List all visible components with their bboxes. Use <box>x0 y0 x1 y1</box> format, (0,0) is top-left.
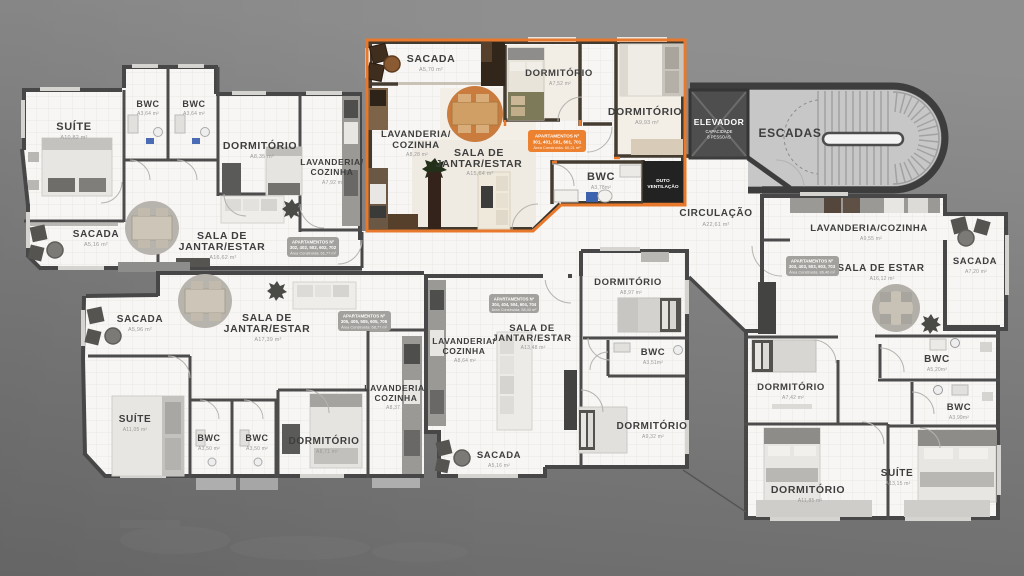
svg-text:APARTAMENTOS Nº: APARTAMENTOS Nº <box>791 259 834 264</box>
svg-text:BWC: BWC <box>182 99 205 109</box>
svg-text:JANTAR/ESTAR: JANTAR/ESTAR <box>224 323 311 335</box>
svg-text:A17,39 m²: A17,39 m² <box>254 337 281 343</box>
svg-text:A13,48 m²: A13,48 m² <box>521 345 546 351</box>
svg-text:SACADA: SACADA <box>73 229 119 240</box>
svg-text:A8,37 m²: A8,37 m² <box>386 405 408 411</box>
svg-text:BWC: BWC <box>197 433 220 443</box>
svg-text:BWC: BWC <box>136 99 159 109</box>
svg-text:DORMITÓRIO: DORMITÓRIO <box>525 67 593 79</box>
svg-text:A16,62 m²: A16,62 m² <box>209 255 236 261</box>
svg-text:305, 405, 505, 605, 705: 305, 405, 505, 605, 705 <box>341 319 388 324</box>
svg-text:A22,61 m²: A22,61 m² <box>702 222 729 228</box>
svg-text:A10,82 m²: A10,82 m² <box>60 135 87 141</box>
svg-text:DORMITÓRIO: DORMITÓRIO <box>757 381 825 393</box>
svg-text:303, 403, 503, 603, 703: 303, 403, 503, 603, 703 <box>789 264 836 269</box>
svg-text:SUÍTE: SUÍTE <box>56 120 91 133</box>
svg-text:A15,64 m²: A15,64 m² <box>466 171 493 177</box>
svg-text:DORMITÓRIO: DORMITÓRIO <box>594 276 662 288</box>
svg-text:ELEVADOR: ELEVADOR <box>694 117 745 127</box>
svg-text:Área Construída: 68,77 m²: Área Construída: 68,77 m² <box>341 325 388 330</box>
svg-text:A8,97 m²: A8,97 m² <box>620 290 642 296</box>
svg-text:COZINHA: COZINHA <box>443 346 486 356</box>
svg-text:A9,93 m²: A9,93 m² <box>635 120 659 126</box>
svg-text:LAVANDERIA/COZINHA: LAVANDERIA/COZINHA <box>810 223 928 234</box>
svg-text:BWC: BWC <box>641 347 666 358</box>
svg-text:A7,20 m²: A7,20 m² <box>965 269 987 275</box>
svg-text:SACADA: SACADA <box>407 53 456 65</box>
svg-text:COZINHA: COZINHA <box>311 167 354 177</box>
svg-text:A3,78m²: A3,78m² <box>591 185 611 191</box>
svg-text:A5,16 m²: A5,16 m² <box>488 463 510 469</box>
svg-text:ESCADAS: ESCADAS <box>759 126 822 140</box>
svg-text:A11,85 m²: A11,85 m² <box>798 498 823 504</box>
svg-text:COZINHA: COZINHA <box>392 140 439 151</box>
svg-text:BWC: BWC <box>245 433 268 443</box>
svg-text:APARTAMENTOS Nº: APARTAMENTOS Nº <box>494 297 535 302</box>
svg-text:JANTAR/ESTAR: JANTAR/ESTAR <box>179 241 266 253</box>
svg-text:A8,28 m²: A8,28 m² <box>406 152 428 158</box>
svg-text:SUÍTE: SUÍTE <box>119 412 151 425</box>
svg-text:A3,50 m²: A3,50 m² <box>198 446 220 452</box>
svg-text:DORMITÓRIO: DORMITÓRIO <box>608 105 682 118</box>
svg-text:DORMITÓRIO: DORMITÓRIO <box>617 419 688 432</box>
svg-text:SUÍTE: SUÍTE <box>881 466 913 479</box>
svg-text:BWC: BWC <box>587 171 615 183</box>
svg-text:A8,64 m²: A8,64 m² <box>454 358 476 364</box>
svg-text:A5,96 m²: A5,96 m² <box>128 327 152 333</box>
svg-text:DUTO: DUTO <box>656 178 670 184</box>
svg-text:301, 401, 501, 601, 701: 301, 401, 501, 601, 701 <box>533 140 582 145</box>
svg-text:A9,55 m²: A9,55 m² <box>860 236 882 242</box>
svg-text:BWC: BWC <box>947 402 972 413</box>
svg-text:SACADA: SACADA <box>477 450 521 461</box>
svg-text:A3,64 m²: A3,64 m² <box>183 111 205 117</box>
svg-text:SACADA: SACADA <box>117 314 163 325</box>
svg-text:Área Construída: 58,40 m²: Área Construída: 58,40 m² <box>492 308 537 312</box>
svg-text:A7,52 m²: A7,52 m² <box>549 81 571 87</box>
svg-text:A7,92 m²: A7,92 m² <box>322 180 344 186</box>
svg-text:304, 404, 504, 604, 704: 304, 404, 504, 604, 704 <box>492 302 537 307</box>
svg-text:A3,50 m²: A3,50 m² <box>246 446 268 452</box>
svg-text:DORMITÓRIO: DORMITÓRIO <box>771 483 845 496</box>
svg-text:A8,35 m²: A8,35 m² <box>250 154 274 160</box>
svg-text:APARTAMENTOS Nº: APARTAMENTOS Nº <box>292 240 335 245</box>
svg-text:LAVANDERIA/: LAVANDERIA/ <box>432 336 495 346</box>
svg-text:CIRCULAÇÃO: CIRCULAÇÃO <box>679 206 752 219</box>
svg-text:A5,16 m²: A5,16 m² <box>84 242 108 248</box>
svg-text:Área Construída: 86,40 m²: Área Construída: 86,40 m² <box>789 270 836 275</box>
svg-text:BWC: BWC <box>924 354 950 365</box>
svg-text:DORMITÓRIO: DORMITÓRIO <box>223 139 297 152</box>
svg-text:JANTAR/ESTAR: JANTAR/ESTAR <box>492 333 571 344</box>
svg-text:Área Construída: 61,77 m²: Área Construída: 61,77 m² <box>290 251 337 256</box>
svg-text:A5,20m²: A5,20m² <box>927 367 947 373</box>
svg-text:8 PESSOAS: 8 PESSOAS <box>707 135 731 140</box>
svg-text:APARTAMENTOS Nº: APARTAMENTOS Nº <box>535 134 580 139</box>
svg-text:VENTILAÇÃO: VENTILAÇÃO <box>647 183 678 190</box>
svg-text:DORMITÓRIO: DORMITÓRIO <box>289 434 360 447</box>
svg-text:JANTAR/ESTAR: JANTAR/ESTAR <box>436 158 523 170</box>
svg-text:A11,05 m²: A11,05 m² <box>123 427 148 433</box>
svg-text:A9,32 m²: A9,32 m² <box>642 434 664 440</box>
svg-text:Área Construída: 60,21 m²: Área Construída: 60,21 m² <box>533 145 581 150</box>
svg-text:302, 402, 502, 602, 702: 302, 402, 502, 602, 702 <box>290 245 337 250</box>
svg-text:A5,70 m²: A5,70 m² <box>419 67 443 73</box>
svg-text:A16,12 m²: A16,12 m² <box>870 276 895 282</box>
svg-text:A3,99m²: A3,99m² <box>949 415 969 421</box>
svg-text:SACADA: SACADA <box>953 256 997 267</box>
svg-text:SALA DE ESTAR: SALA DE ESTAR <box>837 263 924 274</box>
svg-text:LAVANDERIA/: LAVANDERIA/ <box>364 383 427 393</box>
svg-text:A8,71 m²: A8,71 m² <box>316 449 338 455</box>
svg-text:LAVANDERIA/: LAVANDERIA/ <box>381 129 451 140</box>
svg-text:CAPACIDADE: CAPACIDADE <box>706 129 733 134</box>
svg-text:A3,51m²: A3,51m² <box>643 360 663 366</box>
svg-text:APARTAMENTOS Nº: APARTAMENTOS Nº <box>343 314 386 319</box>
svg-text:LAVANDERIA/: LAVANDERIA/ <box>300 157 363 167</box>
svg-text:A7,42 m²: A7,42 m² <box>782 395 804 401</box>
svg-text:COZINHA: COZINHA <box>375 393 418 403</box>
svg-text:A3,64 m²: A3,64 m² <box>137 111 159 117</box>
svg-text:A13,15 m²: A13,15 m² <box>886 481 911 487</box>
